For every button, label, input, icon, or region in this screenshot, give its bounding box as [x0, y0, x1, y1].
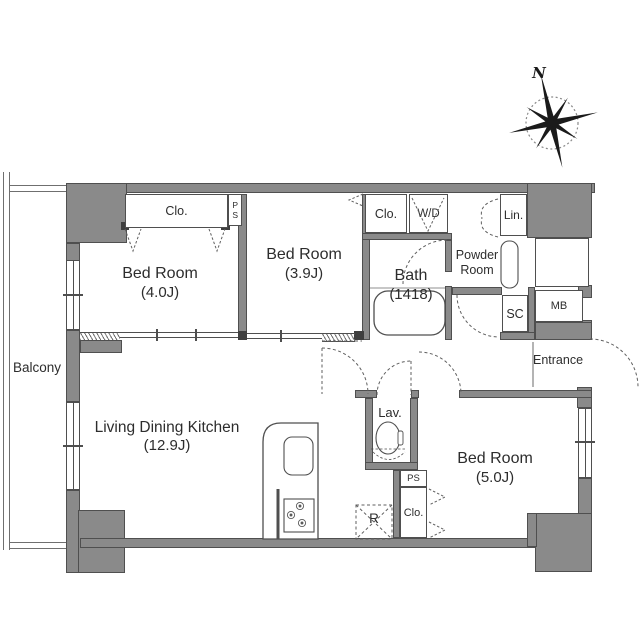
bath-label-wrap: Bath (1418) [371, 267, 451, 304]
refrigerator-label-wrap: R [356, 511, 392, 527]
entrance-label-wrap: Entrance [527, 353, 589, 368]
bath-size: (1418) [371, 286, 451, 304]
lavatory-label-wrap: Lav. [367, 405, 413, 420]
floor-plan: Clo. PS Clo. W/D Lin. MB SC PS Clo. [0, 0, 640, 640]
ldk-size: (12.9J) [78, 437, 256, 455]
compass-north-label: N [531, 64, 547, 82]
closet-door-mark [125, 229, 141, 251]
lavatory-door-arc [377, 361, 411, 395]
washer-dryer-mark [412, 198, 444, 231]
powder-room-door-arc [457, 295, 499, 337]
compass-spikes [509, 74, 598, 168]
bedroom-se-name: Bed Room [431, 450, 559, 469]
bedroom-se-size: (5.0J) [431, 469, 559, 487]
bedroom-n-name: Bed Room [245, 246, 363, 265]
ldk-label-wrap: Living Dining Kitchen (12.9J) [78, 419, 256, 455]
stove [284, 499, 314, 532]
lavatory-label: Lav. [378, 405, 402, 420]
bedroom-n-label-wrap: Bed Room (3.9J) [245, 246, 363, 283]
bath-name: Bath [371, 267, 451, 286]
bedroom-nw-size: (4.0J) [97, 284, 223, 302]
ldk-door-arc [322, 348, 368, 394]
powder-room-label-wrap: Powder Room [443, 248, 511, 278]
bedroom-n-size: (3.9J) [245, 265, 363, 283]
refrigerator-label: R [369, 511, 379, 526]
balcony-label: Balcony [13, 360, 61, 375]
ldk-name: Living Dining Kitchen [78, 419, 256, 437]
kitchen-sink [284, 437, 313, 475]
toilet-icon [371, 422, 406, 460]
kitchen-counter [263, 423, 318, 539]
closet-door-mark [429, 489, 445, 505]
powder-room-line1: Powder [443, 248, 511, 263]
linen-bifold-door [481, 199, 498, 237]
entrance-door-arc [590, 339, 638, 387]
closet-door-mark [349, 194, 363, 206]
closet-door-mark [429, 522, 445, 538]
bedroom-nw-name: Bed Room [97, 265, 223, 284]
compass-rose: N [509, 64, 598, 168]
balcony-label-wrap: Balcony [5, 360, 69, 376]
bedroom-se-door-arc [419, 352, 461, 394]
powder-room-line2: Room [443, 263, 511, 278]
bedroom-nw-label-wrap: Bed Room (4.0J) [97, 265, 223, 302]
bedroom-se-label-wrap: Bed Room (5.0J) [431, 450, 559, 487]
plan-symbols: N [0, 0, 640, 640]
entrance-label: Entrance [533, 353, 583, 367]
closet-door-mark [209, 229, 225, 251]
